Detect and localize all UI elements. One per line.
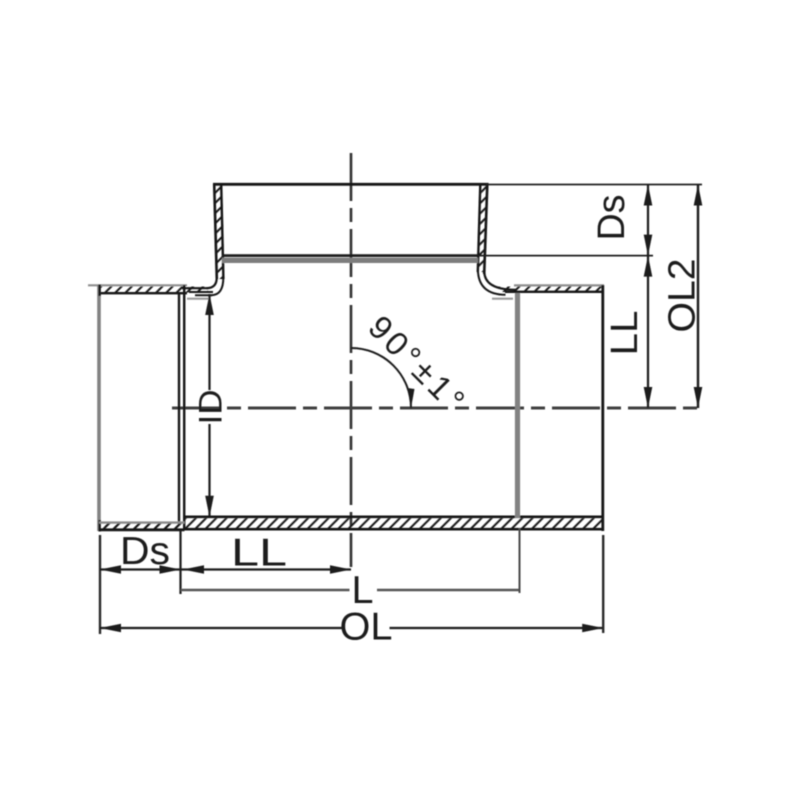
svg-text:OL2: OL2 — [662, 259, 704, 333]
svg-text:Ds: Ds — [591, 195, 633, 241]
svg-text:OL: OL — [340, 606, 393, 649]
svg-text:ID: ID — [193, 390, 229, 425]
svg-text:LL: LL — [604, 311, 646, 356]
svg-text:Ds: Ds — [120, 530, 170, 573]
svg-text:LL: LL — [231, 532, 287, 575]
